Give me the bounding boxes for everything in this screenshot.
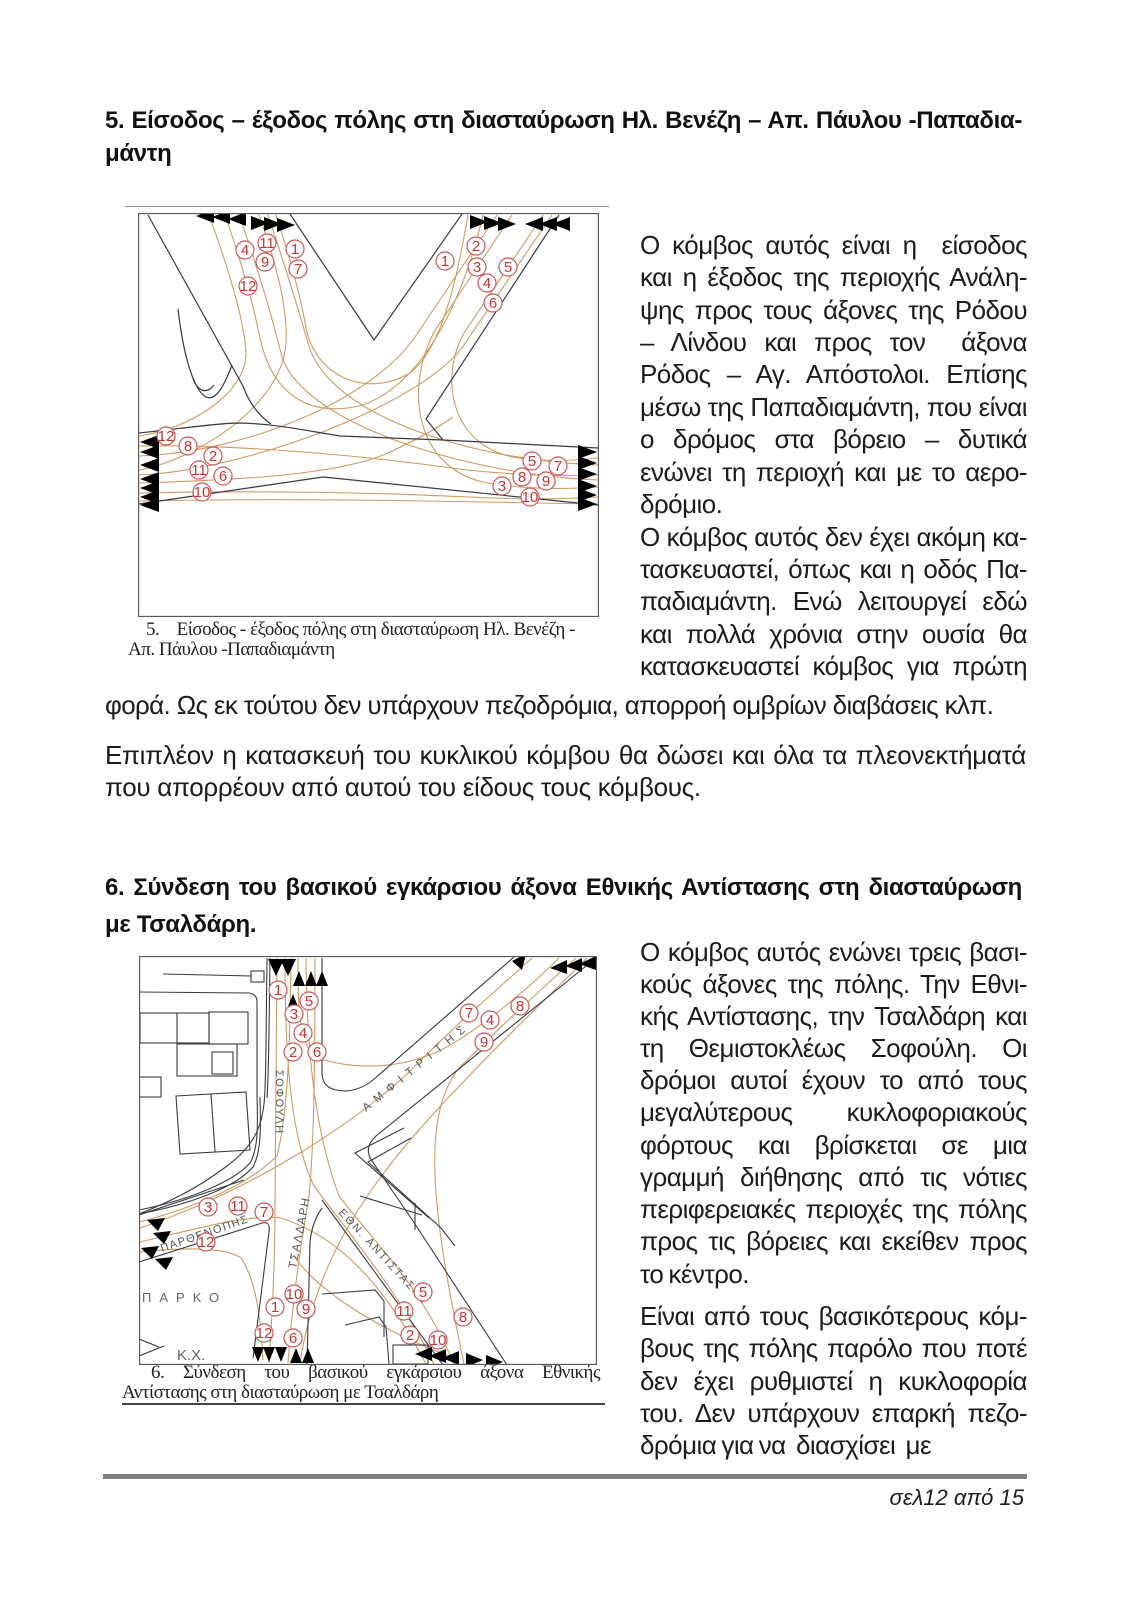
svg-text:8: 8 bbox=[459, 1309, 467, 1326]
svg-text:4: 4 bbox=[241, 242, 249, 259]
svg-text:3: 3 bbox=[204, 1199, 212, 1216]
svg-text:5: 5 bbox=[504, 259, 512, 276]
svg-text:7: 7 bbox=[554, 458, 562, 475]
svg-text:1: 1 bbox=[441, 253, 449, 270]
svg-text:9: 9 bbox=[542, 473, 550, 490]
svg-text:10: 10 bbox=[430, 1332, 447, 1349]
svg-text:9: 9 bbox=[302, 1301, 310, 1318]
svg-text:1: 1 bbox=[274, 982, 282, 999]
svg-text:6: 6 bbox=[313, 1044, 321, 1061]
svg-text:10: 10 bbox=[522, 489, 539, 506]
svg-text:6: 6 bbox=[489, 295, 497, 312]
svg-text:ΑΜΦΙΤΡΙΤΗΣ: ΑΜΦΙΤΡΙΤΗΣ bbox=[360, 1020, 472, 1114]
svg-text:12: 12 bbox=[240, 278, 257, 295]
svg-text:ΣΟΦΟΥΛΗ: ΣΟΦΟΥΛΗ bbox=[273, 1070, 285, 1135]
svg-text:4: 4 bbox=[486, 1012, 494, 1029]
svg-text:3: 3 bbox=[498, 478, 506, 495]
svg-text:Κ.Χ.: Κ.Χ. bbox=[177, 1347, 205, 1364]
svg-text:11: 11 bbox=[259, 235, 275, 252]
svg-text:1: 1 bbox=[291, 241, 299, 258]
svg-text:12: 12 bbox=[256, 1325, 273, 1342]
svg-text:6: 6 bbox=[219, 468, 227, 485]
svg-text:7: 7 bbox=[465, 1005, 473, 1022]
svg-text:2: 2 bbox=[472, 238, 480, 255]
svg-text:3: 3 bbox=[290, 1006, 298, 1023]
svg-text:12: 12 bbox=[198, 1234, 215, 1251]
svg-text:5: 5 bbox=[419, 1284, 427, 1301]
svg-text:9: 9 bbox=[480, 1034, 488, 1051]
svg-text:11: 11 bbox=[230, 1198, 246, 1215]
svg-text:8: 8 bbox=[184, 438, 192, 455]
svg-text:4: 4 bbox=[483, 275, 491, 292]
svg-text:5: 5 bbox=[528, 453, 536, 470]
svg-text:12: 12 bbox=[158, 428, 175, 445]
svg-text:7: 7 bbox=[260, 1204, 268, 1221]
svg-text:11: 11 bbox=[396, 1303, 412, 1320]
svg-text:10: 10 bbox=[194, 484, 211, 501]
svg-text:6: 6 bbox=[289, 1330, 297, 1347]
svg-text:ΠΑΡΚΟ: ΠΑΡΚΟ bbox=[142, 1290, 227, 1305]
svg-text:2: 2 bbox=[406, 1327, 414, 1344]
svg-text:10: 10 bbox=[286, 1286, 303, 1303]
svg-text:2: 2 bbox=[289, 1044, 297, 1061]
svg-text:8: 8 bbox=[518, 469, 526, 486]
svg-text:ΤΣΑΛΔΑΡΗ: ΤΣΑΛΔΑΡΗ bbox=[287, 1196, 313, 1270]
svg-text:8: 8 bbox=[516, 998, 524, 1015]
svg-text:5: 5 bbox=[305, 993, 313, 1010]
svg-text:3: 3 bbox=[473, 259, 481, 276]
svg-text:1: 1 bbox=[271, 1299, 279, 1316]
svg-text:4: 4 bbox=[299, 1025, 307, 1042]
svg-text:2: 2 bbox=[209, 448, 217, 465]
svg-text:9: 9 bbox=[261, 254, 269, 271]
svg-text:7: 7 bbox=[294, 261, 302, 278]
svg-text:11: 11 bbox=[191, 462, 207, 479]
